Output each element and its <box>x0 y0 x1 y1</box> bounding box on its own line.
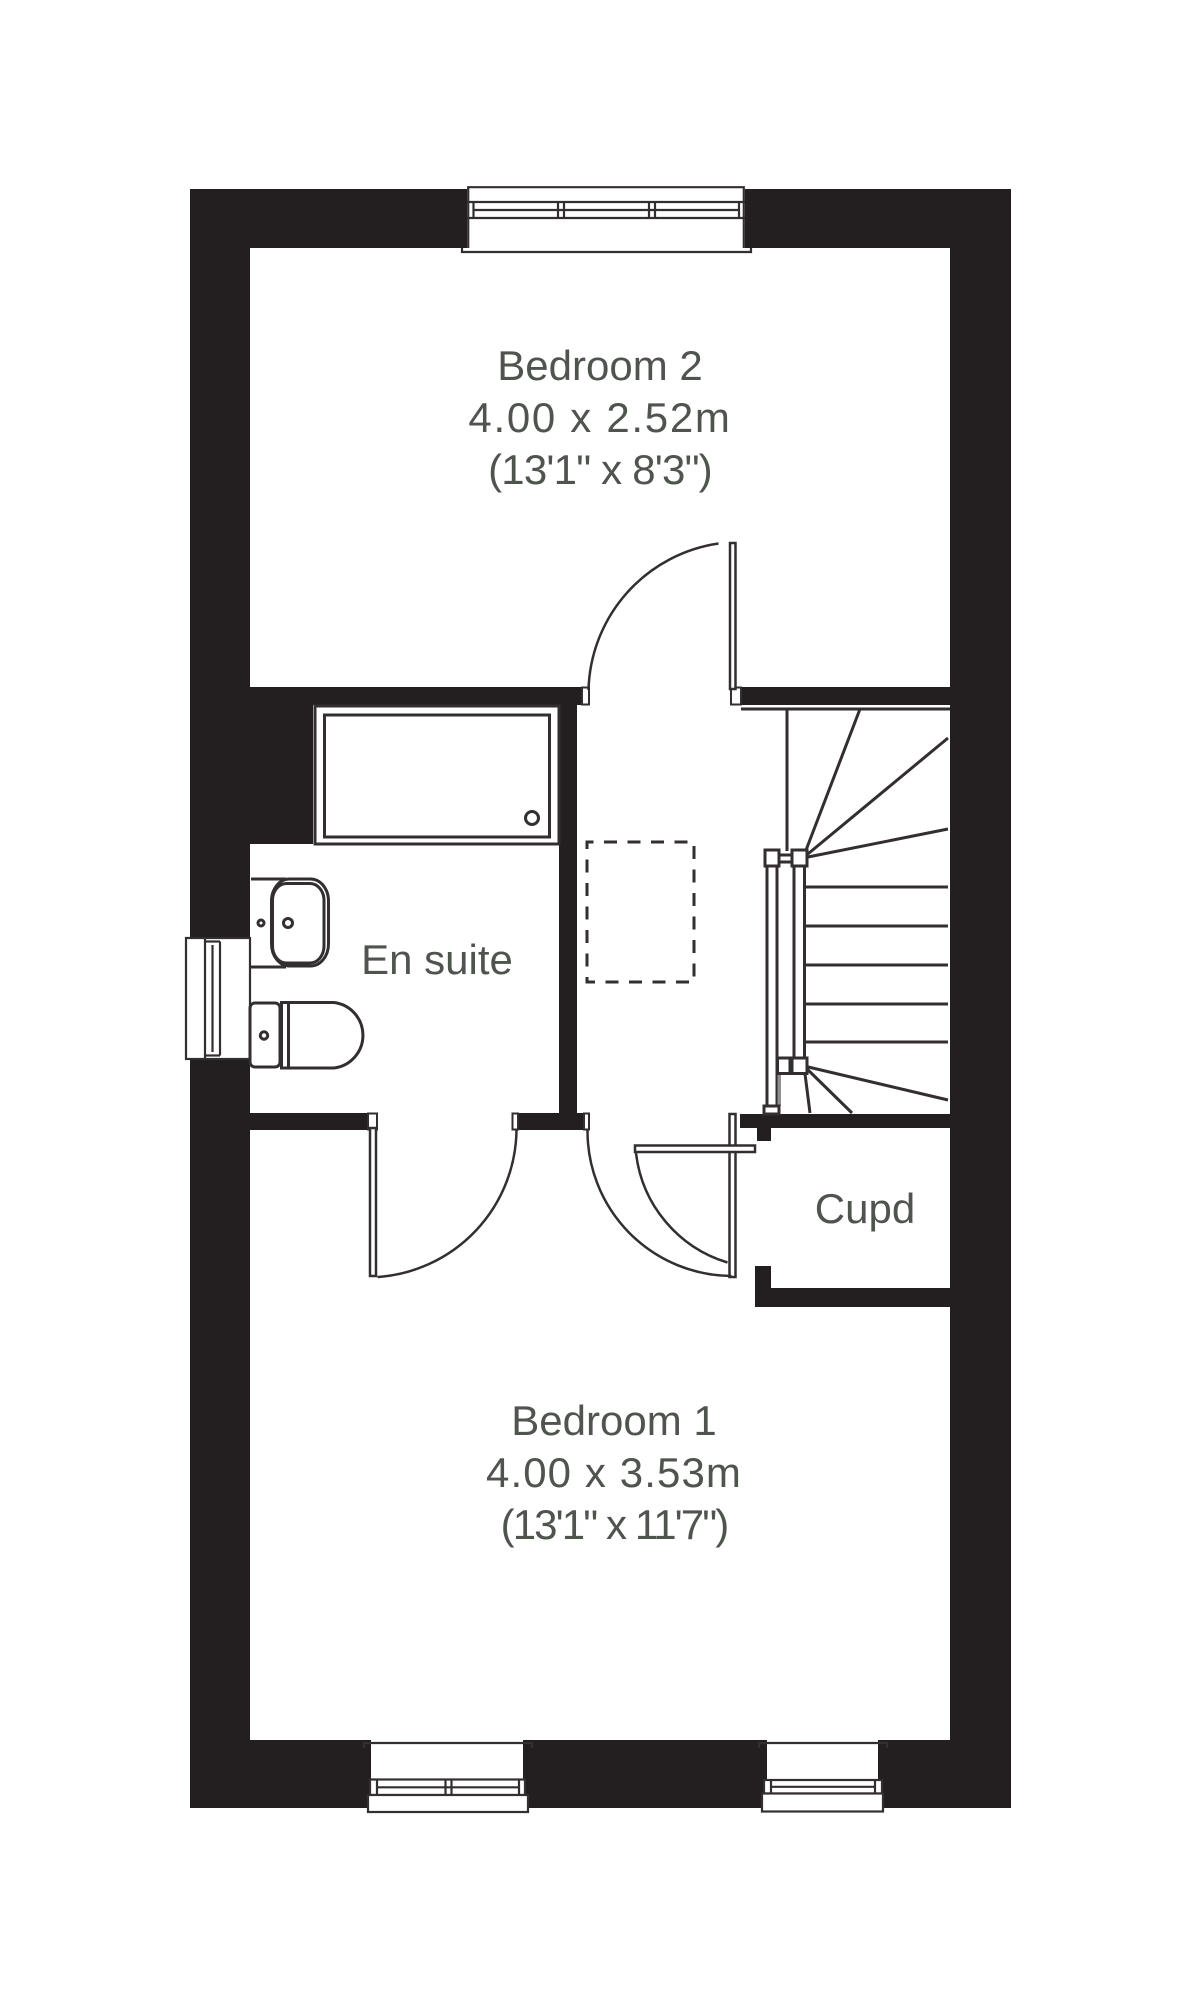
svg-text:(13'1" x 8'3"): (13'1" x 8'3") <box>488 446 712 493</box>
svg-text:Bedroom 2: Bedroom 2 <box>497 342 702 389</box>
svg-text:4.00 x 3.53m: 4.00 x 3.53m <box>486 1449 742 1496</box>
svg-text:Cupd: Cupd <box>815 1185 915 1232</box>
svg-text:En suite: En suite <box>361 936 513 983</box>
svg-text:Bedroom 1: Bedroom 1 <box>511 1397 716 1444</box>
svg-text:(13'1" x 11'7"): (13'1" x 11'7") <box>501 1501 728 1548</box>
svg-text:4.00 x 2.52m: 4.00 x 2.52m <box>468 394 731 441</box>
